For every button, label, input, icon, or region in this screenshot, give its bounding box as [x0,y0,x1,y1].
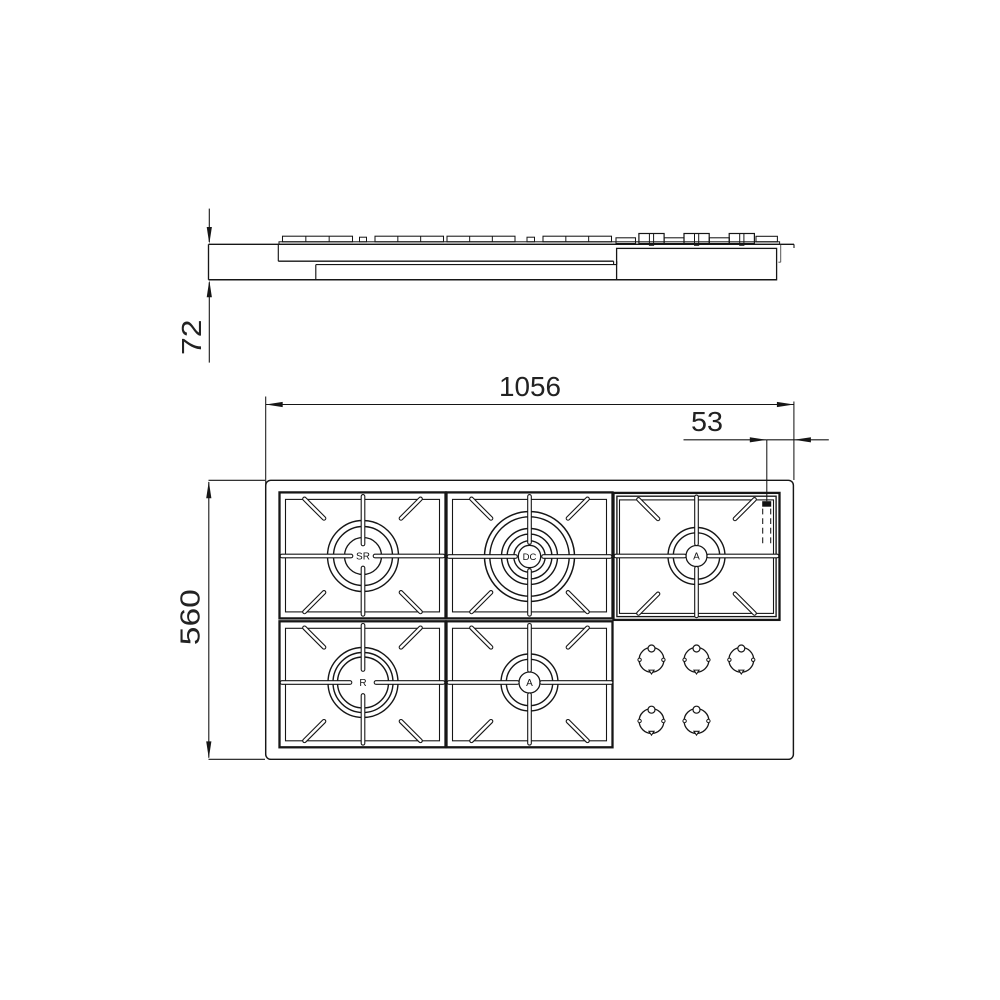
svg-text:A: A [526,678,533,689]
svg-text:A: A [693,552,700,563]
svg-text:72: 72 [176,320,207,356]
svg-text:DC: DC [523,552,537,563]
svg-text:560: 560 [175,589,206,645]
svg-text:53: 53 [691,406,723,437]
svg-text:1056: 1056 [499,371,561,402]
svg-text:R: R [359,678,366,689]
svg-text:SR: SR [356,552,370,563]
